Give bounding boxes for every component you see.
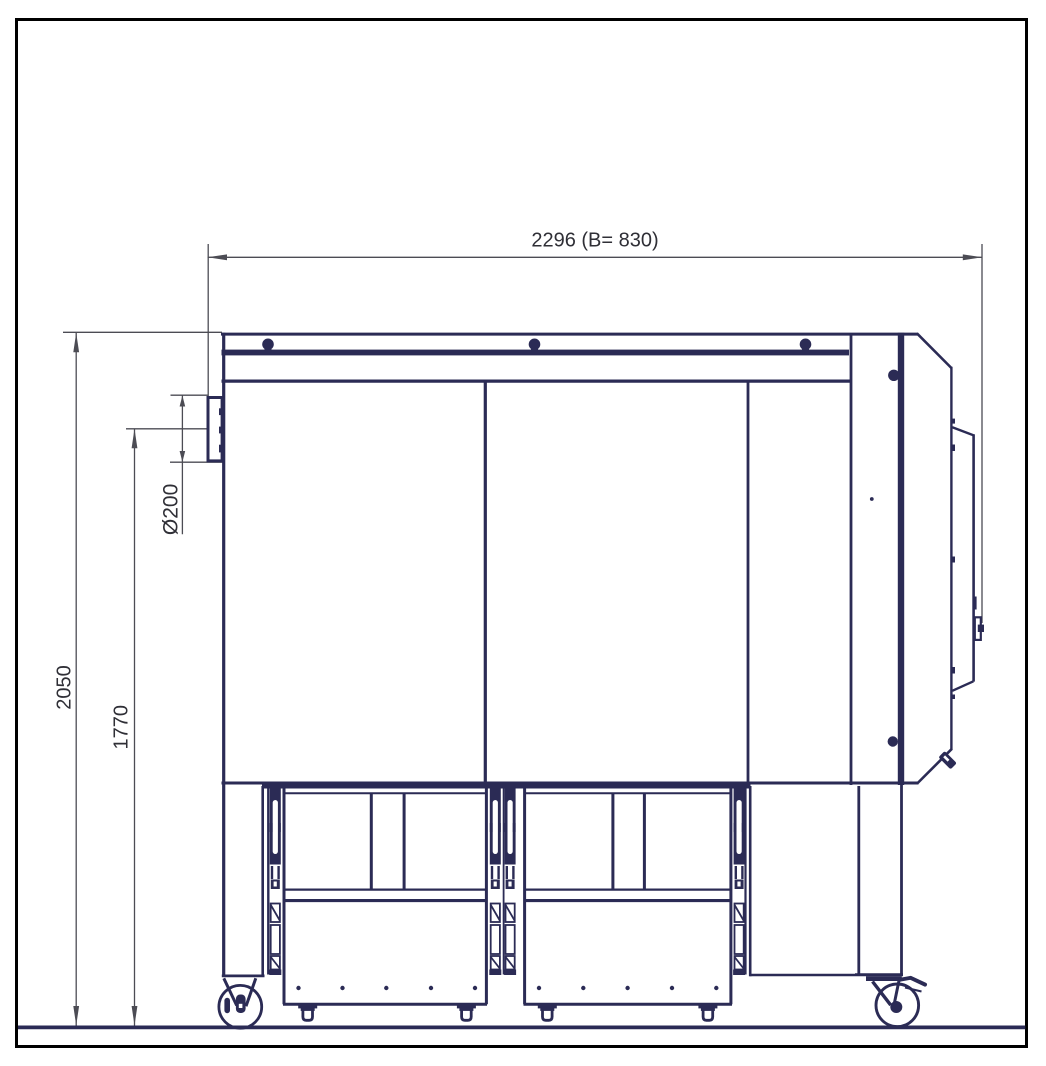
svg-text:2296 (B= 830): 2296 (B= 830) — [531, 230, 658, 252]
svg-text:1770: 1770 — [111, 705, 133, 750]
svg-text:2050: 2050 — [54, 665, 76, 710]
svg-text:Ø200: Ø200 — [160, 484, 183, 535]
